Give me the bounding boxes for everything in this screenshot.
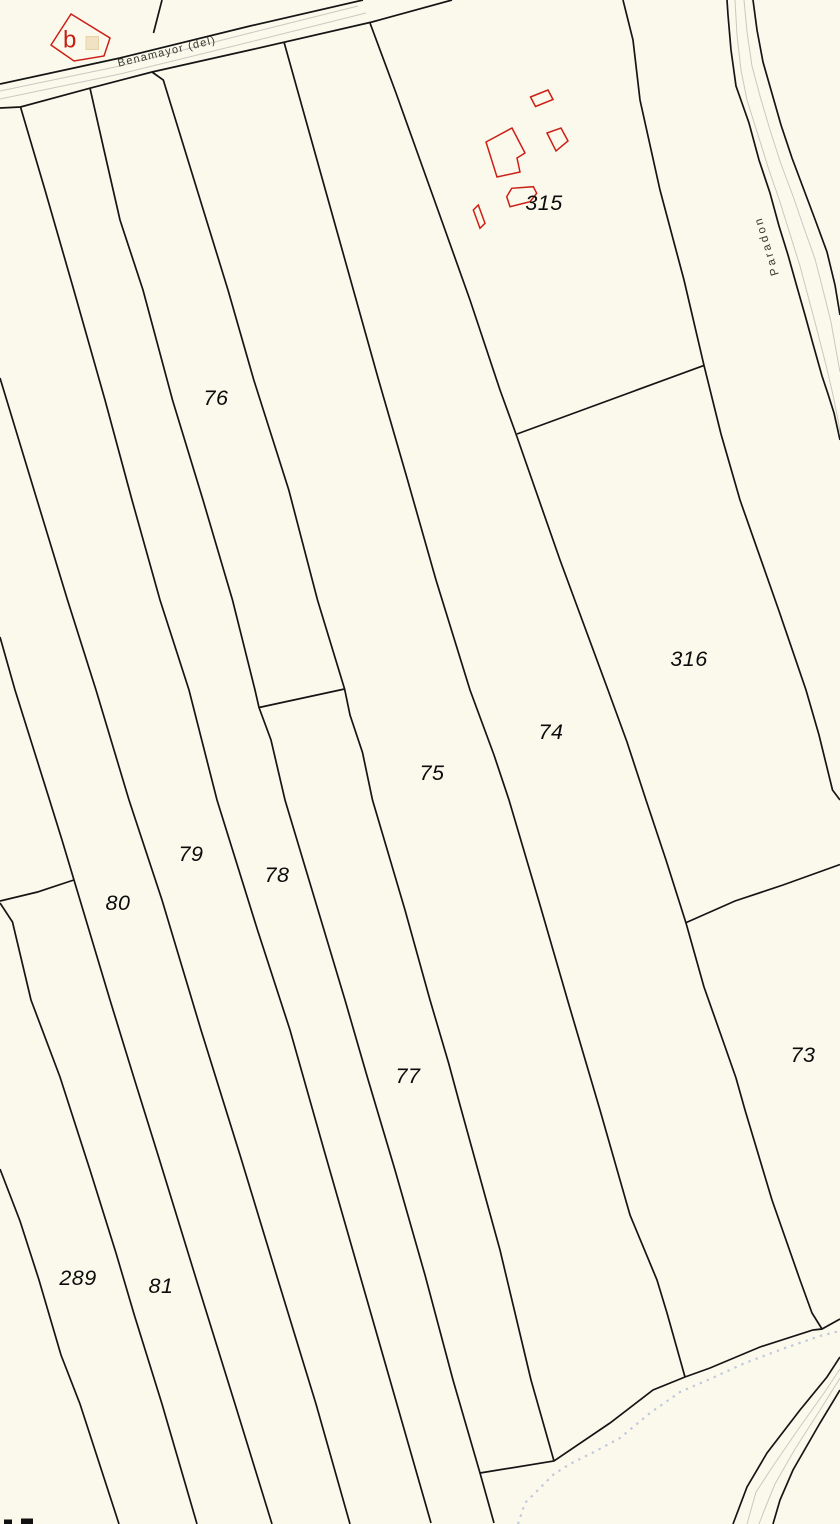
svg-text:74: 74: [539, 720, 564, 744]
svg-text:73: 73: [791, 1043, 816, 1067]
svg-text:81: 81: [149, 1274, 174, 1298]
svg-text:75: 75: [420, 761, 445, 785]
svg-text:80: 80: [106, 891, 131, 915]
svg-text:289: 289: [58, 1266, 96, 1290]
svg-text:76: 76: [204, 386, 229, 410]
svg-text:78: 78: [265, 863, 290, 887]
svg-text:79: 79: [179, 842, 204, 866]
svg-text:315: 315: [525, 191, 563, 215]
svg-text:b: b: [63, 27, 76, 54]
svg-text:77: 77: [396, 1064, 421, 1088]
svg-text:316: 316: [670, 647, 707, 671]
